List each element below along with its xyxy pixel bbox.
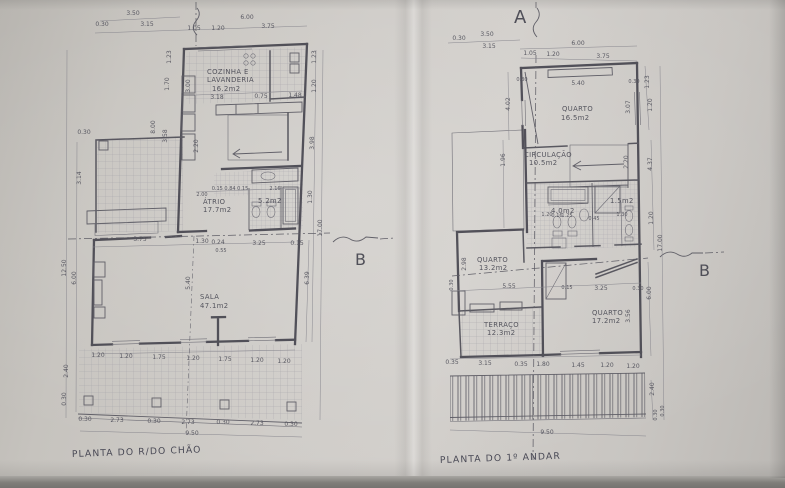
wall — [523, 143, 638, 148]
appliance — [182, 114, 195, 131]
area-label: 16.5m2 — [561, 114, 589, 122]
wall — [543, 259, 596, 261]
stairs-direction-arrow — [573, 161, 624, 170]
dim-label: 1.20 — [186, 355, 200, 362]
dim-label: 0.15 — [561, 285, 572, 291]
dim-label: 3.58 — [162, 129, 169, 143]
dim-label: 3.50 — [126, 10, 140, 17]
paper-right-shadow — [769, 0, 785, 478]
dim-label: 1.20 — [277, 358, 291, 365]
dim-label: 0.30 — [516, 77, 527, 83]
atrio-tile-floor — [214, 171, 250, 197]
dim-label: 1.20 — [91, 352, 105, 359]
dim-label: 1.96 — [500, 153, 507, 167]
floorplan-drawing: 3.50 0.30 3.15 6.00 1.05 1.20 3.75 COZIN… — [0, 0, 785, 488]
room-label: LAVANDERIA — [207, 76, 254, 84]
room-label: QUARTO — [562, 105, 593, 113]
area-label: 1.5m2 — [610, 197, 634, 205]
dim-label: 5.55 — [502, 283, 516, 290]
dim-label: 6.39 — [304, 271, 311, 285]
dim-label: 2.20 — [193, 139, 200, 153]
dim-label: 0.15 0.84 0.15 — [212, 186, 249, 192]
dim-label: 0.30 — [61, 392, 68, 406]
area-label: 17.7m2 — [203, 206, 231, 214]
dim-label: 2.20 — [623, 155, 630, 169]
dim-label: 2.40 — [63, 364, 70, 378]
dim-label: 3.15 — [482, 43, 496, 50]
dim-label: 2.73 — [110, 417, 124, 424]
dim-label: 5.40 — [571, 80, 585, 87]
dim-label: 0.30 — [653, 409, 659, 420]
dim-label: 3.75 — [261, 23, 275, 30]
area-label: 47.1m2 — [200, 302, 228, 310]
dim-label: 4.02 — [505, 97, 512, 111]
dim-label: 0.30 — [449, 279, 455, 290]
section-line-b — [705, 252, 724, 253]
dim-label: 3.98 — [309, 136, 316, 150]
dim-label: 6.00 — [240, 14, 254, 21]
wall — [521, 63, 637, 68]
dim-label: 0.30 — [95, 21, 109, 28]
dim-label: 1.05 — [523, 50, 537, 57]
dim-label: 0.55 — [215, 248, 226, 254]
dim-label: 1.20 — [311, 79, 318, 93]
dim-label: 1.45 — [571, 362, 585, 369]
dim-label: 0.45 — [588, 216, 599, 222]
dim-label: 3.56 — [625, 309, 632, 323]
dim-label: 1.70 — [164, 77, 171, 91]
dim-label: 0.30 — [284, 421, 298, 428]
dim-label: 1.20 — [546, 51, 560, 58]
dim-label: 17.00 — [317, 219, 324, 236]
plan-title: PLANTA DO R/DO CHÃO — [72, 444, 202, 460]
room-label: ÁTRIO — [203, 197, 225, 206]
area-label: 17.2m2 — [592, 317, 620, 325]
dim-label: 2.40 — [649, 382, 656, 396]
section-break-line — [660, 252, 703, 257]
dim-label: 12.50 — [61, 259, 68, 276]
dim-label: 3.75 — [133, 236, 147, 243]
dim-label: 0.30 — [660, 405, 666, 416]
room-label: CIRCULAÇÃO — [524, 150, 572, 159]
first-floor-plan: 3.50 0.30 3.15 6.00 1.05 1.20 3.75 QUART… — [440, 2, 724, 466]
dim-label: 3.18 — [210, 94, 224, 101]
area-label: 13.2m2 — [479, 264, 507, 272]
dim-label: 3.15 — [140, 21, 154, 28]
dim-label: 0.30 — [452, 35, 466, 42]
sloped-wall — [596, 259, 637, 278]
dim-label: 1.20 — [647, 98, 654, 112]
wall — [542, 261, 543, 356]
dim-label: 1.25 — [561, 213, 572, 219]
dim-label: 1.30 — [307, 190, 314, 204]
dim-label: 1.75 — [218, 356, 232, 363]
dim-label: 1.30 — [616, 212, 627, 218]
stairs-direction-arrow — [233, 149, 282, 158]
window — [112, 337, 276, 344]
dim-label: 0.35 — [445, 359, 459, 366]
area-label: 5.2m2 — [258, 197, 282, 205]
dim-label: 17.00 — [657, 234, 664, 251]
dim-label: 1.80 — [536, 361, 550, 368]
room-label: COZINHA E — [207, 68, 249, 76]
section-marker-b: B — [699, 261, 710, 280]
dim-label: 1.20 — [648, 211, 655, 225]
dim-label: 1.23 — [644, 75, 651, 89]
dim-label: 3.50 — [480, 31, 494, 38]
roof-hatch — [452, 130, 524, 231]
dim-label: 1.20 — [600, 362, 614, 369]
dim-label: 2.00 — [196, 192, 207, 198]
dim-label: 6.00 — [71, 271, 78, 285]
window — [522, 100, 526, 126]
fireplace — [94, 307, 105, 318]
dim-label: 1.23 — [166, 50, 173, 64]
kitchen-counter — [216, 102, 302, 115]
dim-label: 1.75 — [152, 354, 166, 361]
dim-label: 8.00 — [150, 120, 157, 134]
dim-label: 0.35 — [514, 361, 528, 368]
patio-tile-floor — [97, 136, 183, 233]
wall — [523, 230, 524, 263]
wall — [178, 229, 295, 233]
dim-label: 1.48 — [288, 92, 302, 99]
fireplace — [94, 280, 102, 305]
ground-floor-plan: 3.50 0.30 3.15 6.00 1.05 1.20 3.75 COZIN… — [61, 2, 394, 460]
dim-label: 6.00 — [571, 40, 585, 47]
dim-label: 9.50 — [540, 429, 554, 436]
dim-label: 1.20 — [211, 25, 225, 32]
wardrobe — [548, 68, 612, 78]
dim-label: 3.75 — [596, 53, 610, 60]
fireplace — [94, 262, 105, 277]
dim-label: 3.00 — [185, 79, 192, 93]
area-label: 16.2m2 — [212, 85, 240, 93]
area-label: 10.5m2 — [529, 159, 557, 167]
dim-label: 9.50 — [185, 430, 199, 437]
paper-bottom-edge — [0, 476, 785, 488]
section-marker-a: A — [514, 7, 527, 28]
window — [560, 350, 600, 354]
dim-label: 0.30 — [77, 129, 91, 136]
dim-label: 1.20 — [119, 353, 133, 360]
photo-of-floorplan-sheet: 3.50 0.30 3.15 6.00 1.05 1.20 3.75 COZIN… — [0, 0, 785, 488]
dim-label: 3.07 — [625, 100, 632, 114]
dim-label: 1.30 — [195, 238, 209, 245]
dim-label: 2.16 — [269, 186, 280, 192]
dim-label: 3.25 — [594, 285, 608, 292]
dim-label: 6.00 — [646, 286, 653, 300]
dim-label: 3.15 — [478, 360, 492, 367]
section-break-line — [333, 237, 378, 242]
dim-label: 0.15 — [290, 240, 304, 247]
dim-label: 1.20 — [626, 363, 640, 370]
dim-label: 4.37 — [647, 157, 654, 171]
section-line-b — [380, 238, 394, 239]
dim-label: 0.24 — [211, 239, 225, 246]
dim-label: 1.05 — [187, 25, 201, 32]
dim-label: 2.98 — [461, 257, 468, 271]
dim-label: 0.30 — [628, 79, 639, 85]
dim-label: 2.73 — [181, 419, 195, 426]
dim-label: 0.30 — [147, 418, 161, 425]
paper-top-shadow — [0, 0, 785, 10]
wall — [525, 130, 527, 232]
room-label: QUARTO — [592, 309, 623, 317]
dim-label: 3.25 — [252, 240, 266, 247]
room-label: TERRAÇO — [483, 321, 519, 329]
dim-label: 1.20 — [250, 357, 264, 364]
section-break-line — [533, 8, 539, 37]
dim-label: 0.75 — [254, 93, 268, 100]
area-label: 12.3m2 — [487, 329, 515, 337]
room-label: SALA — [200, 293, 219, 301]
room-label: QUARTO — [477, 256, 508, 264]
wardrobe-diagonal — [546, 263, 566, 299]
dim-label: 3.14 — [76, 171, 83, 185]
dim-label: 1.23 — [311, 50, 318, 64]
dim-label: 5.40 — [185, 276, 192, 290]
balcony-railing — [450, 373, 646, 421]
section-marker-b: B — [355, 250, 366, 269]
dim-label: 0.30 — [78, 416, 92, 423]
dim-label: 0.30 — [216, 419, 230, 426]
dim-label: 0.30 — [632, 286, 643, 292]
dim-label: 2.73 — [250, 420, 264, 427]
